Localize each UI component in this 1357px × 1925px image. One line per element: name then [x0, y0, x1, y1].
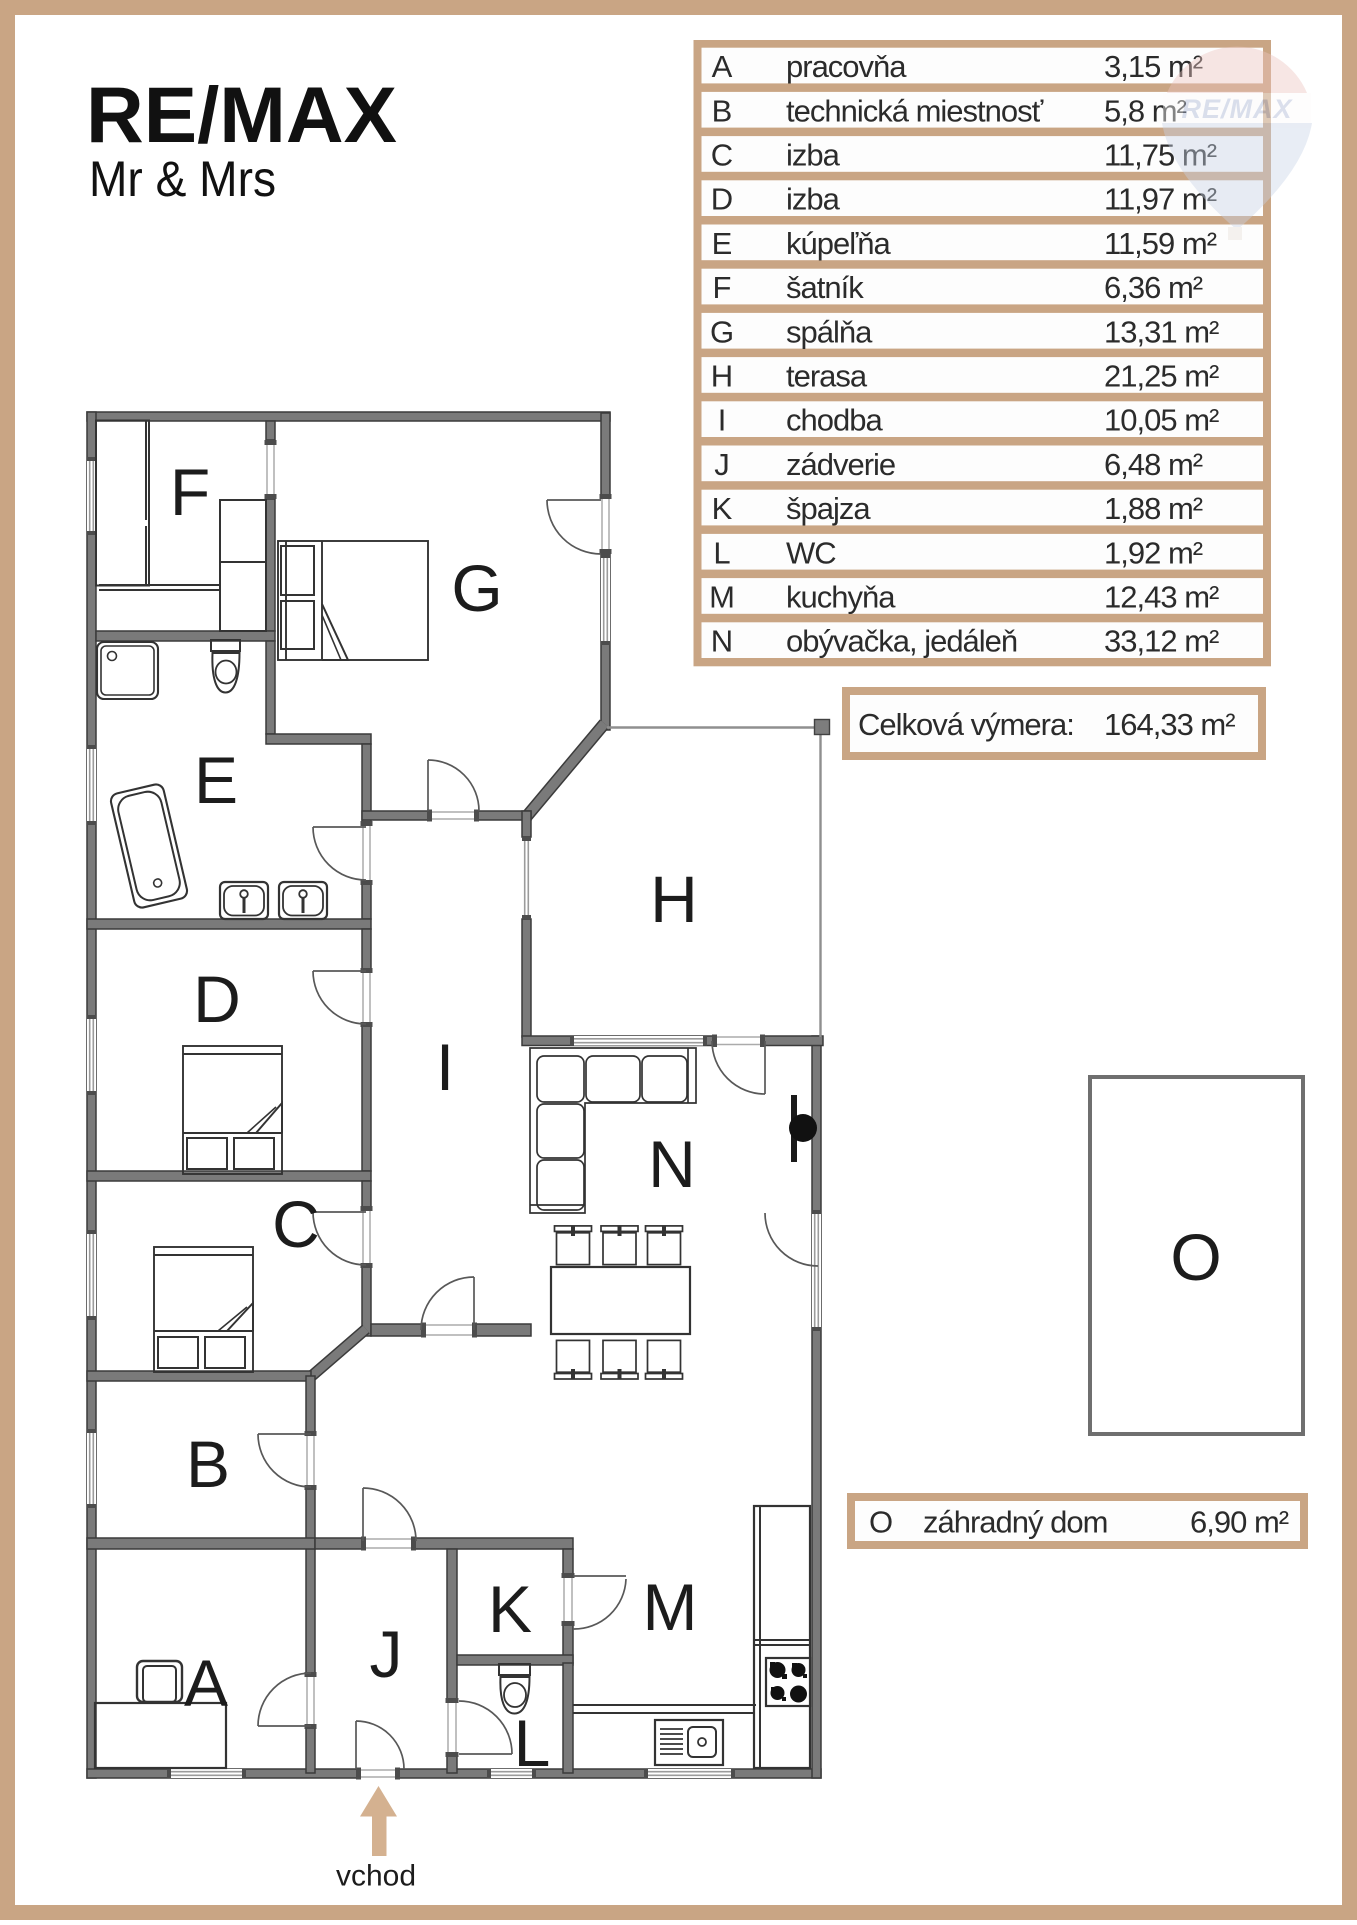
svg-text:špajza: špajza: [786, 491, 871, 526]
svg-text:33,12 m²: 33,12 m²: [1104, 624, 1219, 659]
svg-text:izba: izba: [786, 182, 841, 217]
svg-text:K: K: [488, 1572, 532, 1646]
svg-text:spálňa: spálňa: [786, 314, 873, 349]
svg-text:I: I: [718, 403, 727, 438]
svg-text:M: M: [709, 580, 735, 615]
svg-text:obývačka, jedáleň: obývačka, jedáleň: [786, 624, 1017, 659]
svg-text:RE/MAX: RE/MAX: [86, 70, 397, 159]
svg-text:vchod: vchod: [336, 1860, 416, 1893]
svg-text:C: C: [711, 138, 733, 173]
svg-text:kúpeľňa: kúpeľňa: [786, 226, 891, 261]
svg-text:záhradný dom: záhradný dom: [923, 1505, 1107, 1540]
svg-text:F: F: [713, 270, 732, 305]
svg-text:21,25 m²: 21,25 m²: [1104, 359, 1219, 394]
svg-text:Mr & Mrs: Mr & Mrs: [89, 151, 276, 207]
svg-text:A: A: [712, 49, 733, 84]
svg-text:E: E: [712, 226, 733, 261]
svg-text:zádverie: zádverie: [786, 447, 895, 482]
svg-text:C: C: [272, 1187, 320, 1261]
svg-text:F: F: [170, 455, 210, 529]
svg-text:H: H: [650, 862, 698, 936]
svg-text:kuchyňa: kuchyňa: [786, 580, 896, 615]
svg-text:šatník: šatník: [786, 270, 864, 305]
svg-text:L: L: [514, 1706, 551, 1780]
svg-text:N: N: [711, 624, 733, 659]
svg-text:6,90 m²: 6,90 m²: [1190, 1505, 1289, 1540]
svg-text:B: B: [186, 1427, 230, 1501]
svg-text:1,92 m²: 1,92 m²: [1104, 535, 1203, 570]
svg-text:B: B: [712, 93, 733, 128]
svg-text:D: D: [193, 962, 241, 1036]
svg-text:L: L: [713, 535, 730, 570]
svg-text:13,31 m²: 13,31 m²: [1104, 314, 1219, 349]
svg-text:D: D: [711, 182, 733, 217]
svg-text:G: G: [710, 314, 734, 349]
svg-text:WC: WC: [786, 535, 836, 570]
svg-text:terasa: terasa: [786, 359, 868, 394]
svg-text:1,88 m²: 1,88 m²: [1104, 491, 1203, 526]
svg-text:6,48 m²: 6,48 m²: [1104, 447, 1203, 482]
svg-text:J: J: [714, 447, 730, 482]
svg-text:izba: izba: [786, 138, 841, 173]
svg-text:K: K: [712, 491, 733, 526]
svg-text:J: J: [370, 1617, 403, 1691]
svg-text:pracovňa: pracovňa: [786, 49, 907, 84]
svg-text:H: H: [711, 359, 733, 394]
svg-text:RE/MAX: RE/MAX: [1181, 94, 1293, 124]
svg-text:11,59 m²: 11,59 m²: [1104, 226, 1217, 261]
svg-text:A: A: [184, 1646, 228, 1720]
svg-text:G: G: [451, 551, 502, 625]
svg-text:E: E: [194, 743, 238, 817]
svg-text:chodba: chodba: [786, 403, 883, 438]
svg-text:Celková výmera:: Celková výmera:: [858, 707, 1074, 742]
svg-text:O: O: [869, 1505, 893, 1540]
svg-text:164,33 m²: 164,33 m²: [1104, 707, 1235, 742]
svg-text:M: M: [643, 1570, 698, 1644]
svg-text:technická miestnosť: technická miestnosť: [786, 93, 1044, 128]
svg-text:O: O: [1170, 1220, 1221, 1294]
svg-text:12,43 m²: 12,43 m²: [1104, 580, 1219, 615]
svg-text:N: N: [648, 1127, 696, 1201]
svg-text:6,36 m²: 6,36 m²: [1104, 270, 1203, 305]
svg-text:I: I: [436, 1030, 454, 1104]
svg-text:10,05 m²: 10,05 m²: [1104, 403, 1219, 438]
